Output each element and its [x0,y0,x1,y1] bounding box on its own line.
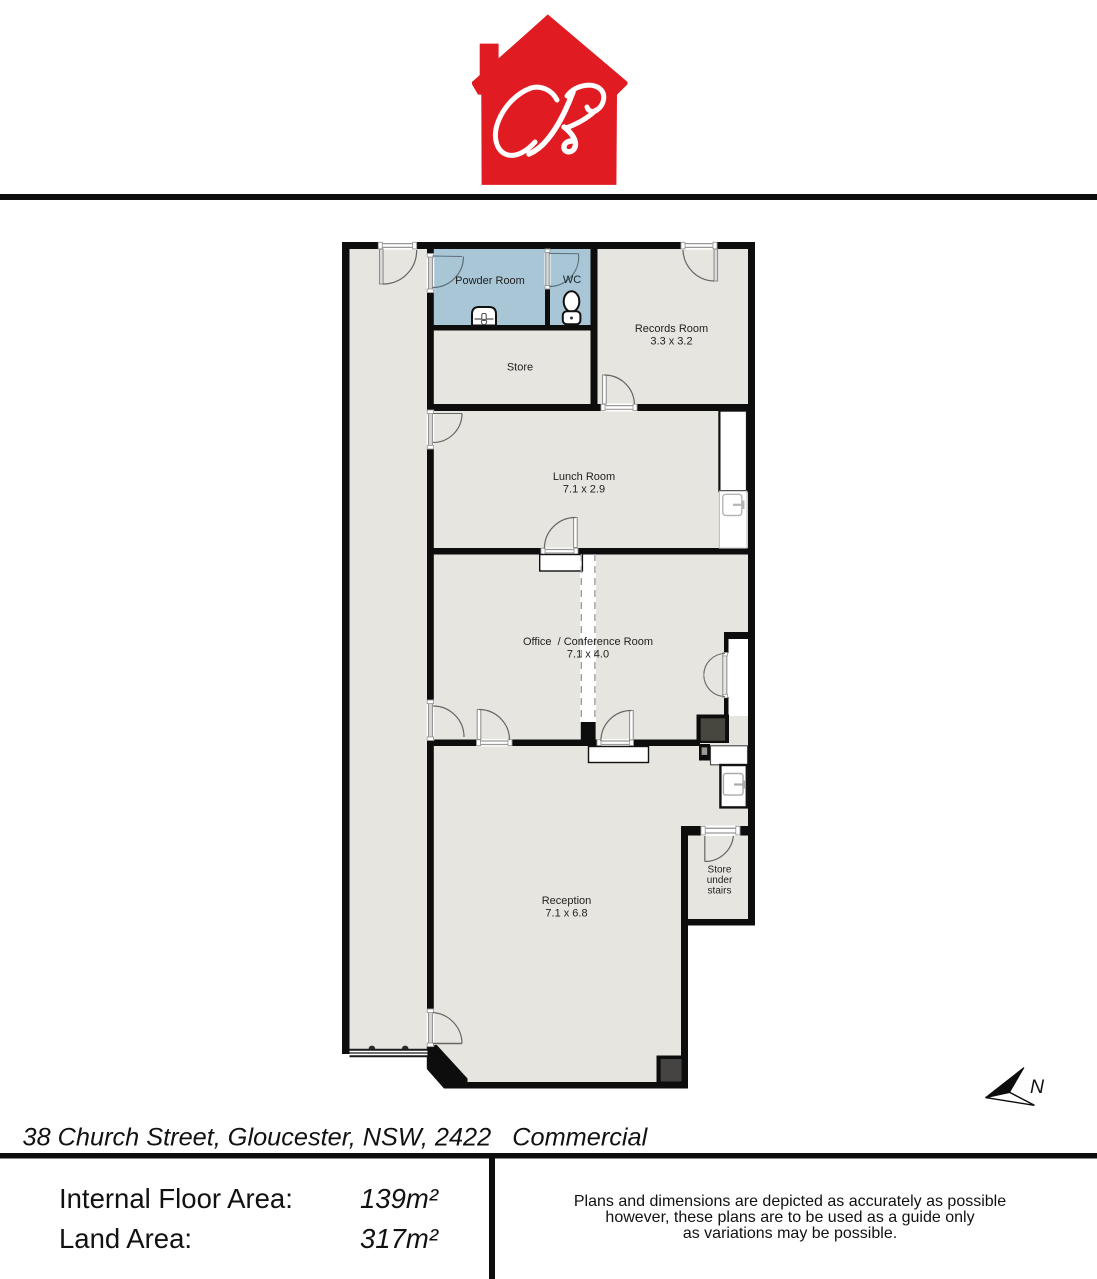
svg-text:Lunch Room: Lunch Room [553,471,615,483]
svg-text:7.1 x 2.9: 7.1 x 2.9 [563,484,605,496]
svg-text:139m²: 139m² [360,1183,439,1214]
svg-text:stairs: stairs [708,886,732,897]
svg-text:N: N [1030,1076,1045,1098]
svg-text:Store: Store [507,362,533,374]
svg-text:Powder Room: Powder Room [455,275,525,287]
svg-text:317m²: 317m² [360,1223,439,1254]
svg-text:WC: WC [563,274,581,286]
svg-text:38 Church Street, Gloucester,: 38 Church Street, Gloucester, NSW, 2422 … [23,1124,649,1152]
svg-text:Office / Conference Room: Office / Conference Room [523,636,653,648]
svg-text:Records Room: Records Room [635,323,708,335]
svg-text:Store: Store [708,865,732,876]
svg-text:as variations may be possible.: as variations may be possible. [683,1225,897,1242]
svg-text:Land Area:: Land Area: [59,1223,192,1254]
svg-text:7.1 x 4.0: 7.1 x 4.0 [567,649,609,661]
svg-text:7.1 x 6.8: 7.1 x 6.8 [545,908,587,920]
svg-text:however, these plans are to be: however, these plans are to be used as a… [605,1209,974,1226]
svg-text:Reception: Reception [542,895,592,907]
svg-text:Internal Floor Area:: Internal Floor Area: [59,1183,293,1214]
svg-text:Plans and dimensions are depic: Plans and dimensions are depicted as acc… [574,1193,1006,1210]
svg-text:3.3 x 3.2: 3.3 x 3.2 [650,336,692,348]
svg-text:under: under [707,875,733,886]
